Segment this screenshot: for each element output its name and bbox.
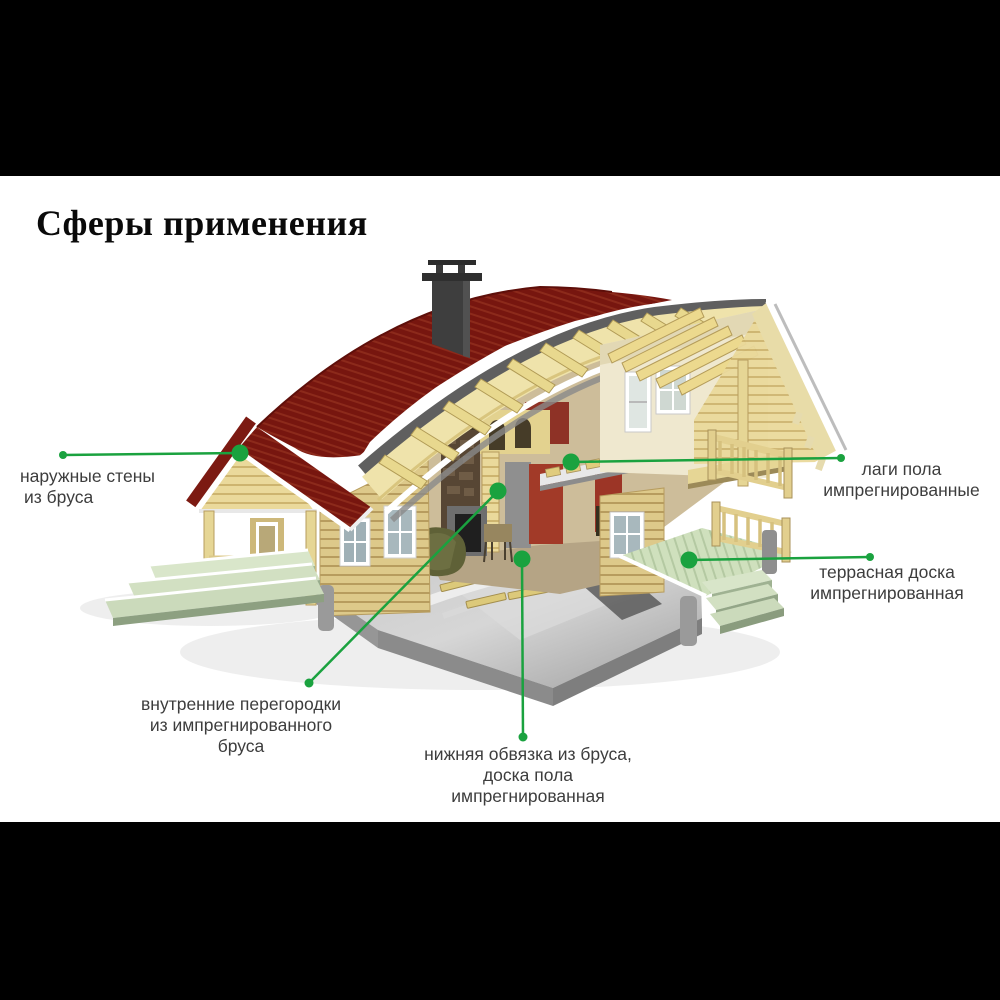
concrete-pillar [680, 596, 697, 646]
concrete-pillar [762, 530, 777, 574]
callout-label-bottom-frame: нижняя обвязка из бруса, доска пола импр… [403, 744, 653, 807]
label-line: импрегнированная [403, 786, 653, 807]
label-line: импрегнированная [792, 583, 982, 604]
callout-label-inner-partitions: внутренние перегородки из импрегнированн… [125, 694, 357, 757]
callout-label-terrace-board: террасная доска импрегнированная [792, 562, 982, 604]
label-line: из импрегнированного [125, 715, 357, 736]
label-line: нижняя обвязка из бруса, [403, 744, 653, 765]
label-line: наружные стены [20, 466, 190, 487]
terrace-steps [702, 570, 784, 634]
callout-label-outer-walls: наружные стены из бруса [20, 466, 190, 508]
label-line: террасная доска [792, 562, 982, 583]
label-line: импрегнированные [804, 480, 999, 501]
attic-door [625, 372, 651, 432]
label-line: лаги пола [804, 459, 999, 480]
label-line: внутренние перегородки [125, 694, 357, 715]
label-line: бруса [125, 736, 357, 757]
label-line: доска пола [403, 765, 653, 786]
label-line: из бруса [20, 487, 190, 508]
callout-label-floor-joists: лаги пола импрегнированные [804, 459, 999, 501]
